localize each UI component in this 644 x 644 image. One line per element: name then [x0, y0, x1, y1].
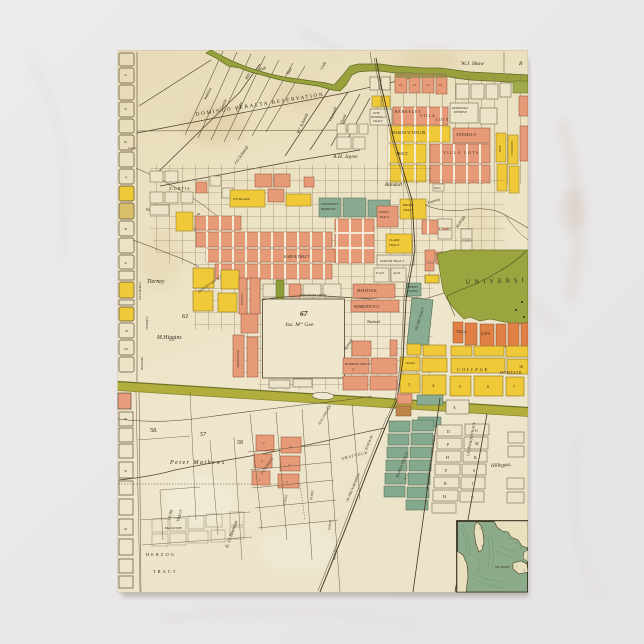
svg-text:63: 63 — [124, 140, 128, 144]
svg-text:101: 101 — [124, 347, 129, 351]
svg-text:VILLA: VILLA — [456, 330, 467, 334]
svg-text:3: 3 — [352, 368, 354, 372]
svg-text:38: 38 — [124, 227, 128, 231]
svg-text:7: 7 — [513, 384, 515, 389]
svg-text:S: S — [473, 468, 475, 473]
svg-text:LOTS: LOTS — [481, 332, 490, 336]
svg-text:SHADLOTND: SHADLOTND — [236, 349, 240, 368]
svg-text:TRACT: TRACT — [373, 119, 383, 123]
svg-text:A.H. Jayne: A.H. Jayne — [332, 154, 358, 160]
svg-text:5: 5 — [459, 384, 461, 389]
svg-text:M: M — [475, 441, 479, 446]
svg-text:6: 6 — [487, 384, 489, 389]
svg-text:GOUND TRACT: GOUND TRACT — [380, 259, 405, 263]
svg-text:M.Higgins: M.Higgins — [156, 335, 182, 341]
svg-text:VILLA LOTS: VILLA LOTS — [443, 151, 480, 155]
svg-text:Hillegass.: Hillegass. — [490, 462, 512, 469]
svg-text:O.F.BLAKE: O.F.BLAKE — [233, 197, 250, 201]
svg-text:KINGSBURY CREEK: KINGSBURY CREEK — [299, 293, 327, 297]
svg-text:BERKELEY: BERKELEY — [395, 110, 422, 114]
svg-text:Horto: Horto — [433, 187, 441, 190]
svg-text:31: 31 — [124, 73, 128, 77]
svg-text:TIERNEY: TIERNEY — [145, 316, 149, 330]
svg-text:30: 30 — [124, 469, 128, 473]
svg-text:Capel: Capel — [128, 146, 136, 150]
svg-text:FULTON: FULTON — [240, 293, 244, 305]
svg-text:HOMESTD: HOMESTD — [499, 371, 522, 375]
svg-text:SAN PABLO: SAN PABLO — [138, 281, 142, 300]
svg-text:61: 61 — [182, 313, 189, 320]
svg-text:VILLA: VILLA — [420, 114, 436, 118]
svg-text:R: R — [474, 455, 477, 460]
svg-text:COLLEGE: COLLEGE — [457, 367, 489, 372]
svg-text:H: H — [446, 455, 449, 460]
svg-text:P. LOT: P. LOT — [376, 272, 384, 275]
svg-text:D: D — [447, 429, 450, 434]
svg-text:KEW: KEW — [498, 145, 502, 152]
svg-text:Tierney: Tierney — [147, 279, 165, 285]
svg-text:UNIVERSITY: UNIVERSITY — [321, 202, 340, 206]
svg-text:CHARLES W TAYLOR: CHARLES W TAYLOR — [390, 131, 426, 135]
svg-text:B: B — [444, 481, 447, 486]
svg-text:ANTISELL'S: ANTISELL'S — [456, 133, 476, 137]
svg-text:40: 40 — [124, 527, 128, 531]
svg-text:BLACKSTONE: BLACKSTONE — [165, 527, 183, 530]
svg-text:13: 13 — [413, 83, 417, 87]
svg-text:W.J. Shaw: W.J. Shaw — [461, 61, 484, 67]
svg-text:LOTS: LOTS — [436, 118, 449, 122]
svg-text:3: 3 — [408, 382, 410, 387]
svg-text:WICKSON: WICKSON — [510, 140, 514, 155]
svg-text:STATION: STATION — [407, 290, 418, 293]
svg-text:Jos. M“ Gee: Jos. M“ Gee — [285, 321, 314, 328]
svg-text:57: 57 — [200, 432, 207, 438]
svg-text:67: 67 — [300, 309, 308, 318]
svg-text:BROOK: BROOK — [403, 203, 415, 207]
svg-text:A: A — [453, 405, 456, 410]
svg-text:CLAIM: CLAIM — [389, 238, 399, 242]
svg-text:HERZOG: HERZOG — [146, 552, 176, 557]
svg-text:4: 4 — [432, 383, 434, 388]
svg-text:40: 40 — [125, 329, 129, 333]
svg-text:41: 41 — [124, 107, 128, 111]
svg-text:46: 46 — [124, 417, 128, 421]
svg-text:41: 41 — [124, 261, 128, 265]
svg-text:HOMESTD Nº11: HOMESTD Nº11 — [354, 305, 380, 309]
svg-text:U: U — [475, 428, 478, 433]
svg-text:SAN FR.BAY: SAN FR.BAY — [495, 566, 510, 569]
svg-text:Tenant: Tenant — [406, 361, 416, 365]
svg-text:Randall: Randall — [384, 182, 403, 188]
svg-text:HOMESTD: HOMESTD — [321, 207, 336, 211]
svg-text:10: 10 — [519, 364, 523, 369]
svg-text:KAPP & TRACT: KAPP & TRACT — [284, 255, 310, 259]
svg-text:56: 56 — [237, 440, 243, 446]
svg-text:12: 12 — [289, 445, 293, 449]
svg-text:14: 14 — [426, 83, 430, 87]
svg-text:CURTIS: CURTIS — [170, 186, 191, 191]
svg-text:Shattuck: Shattuck — [367, 320, 380, 324]
svg-text:HIGGINS: HIGGINS — [140, 357, 144, 370]
svg-text:TRACT: TRACT — [403, 208, 414, 212]
svg-text:12: 12 — [439, 83, 443, 87]
svg-text:Peter Mathews: Peter Mathews — [169, 460, 226, 466]
svg-text:RESERVE: RESERVE — [454, 110, 467, 114]
svg-text:R: R — [518, 61, 523, 67]
svg-text:15: 15 — [399, 83, 403, 87]
svg-text:TRACT: TRACT — [389, 243, 400, 247]
svg-text:58.: 58. — [150, 428, 158, 434]
svg-text:JONES: JONES — [379, 210, 389, 214]
svg-text:SHATTUCK: SHATTUCK — [357, 289, 377, 293]
svg-text:BARKER TRACT: BARKER TRACT — [345, 362, 372, 366]
svg-text:TRACT: TRACT — [379, 215, 390, 219]
svg-text:TRACT: TRACT — [153, 569, 177, 574]
svg-text:H: H — [443, 494, 446, 499]
svg-text:ALUS: ALUS — [393, 272, 401, 275]
